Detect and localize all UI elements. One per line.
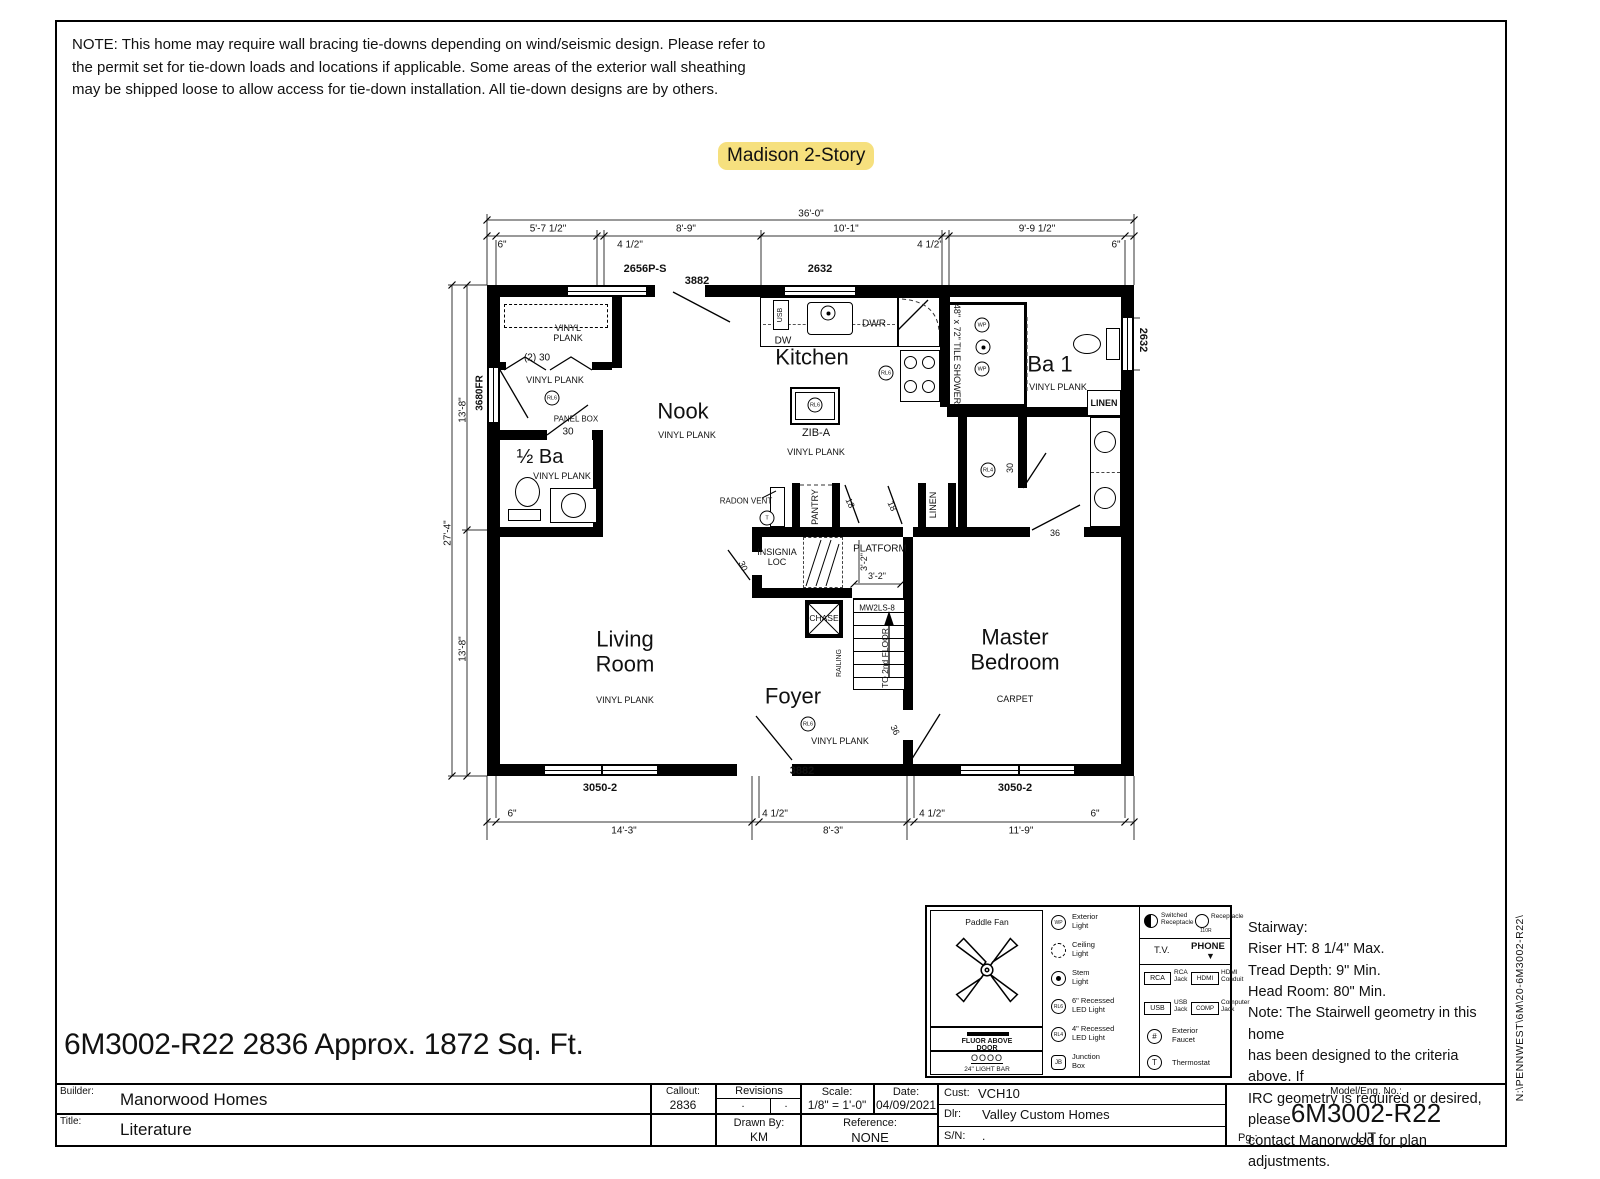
plan-label: 13'-8": [457, 636, 468, 661]
callout-value: 2836: [670, 1098, 697, 1112]
plan-label: 36'-0": [798, 208, 823, 219]
pg-value: LIT: [1356, 1129, 1376, 1145]
model-label: Model/Eng. No.:: [1330, 1086, 1402, 1097]
comp-jack-icon: COMP: [1191, 1002, 1219, 1015]
plan-labels-layer: 36'-0"5'-7 1/2"8'-9"10'-1"9'-9 1/2"6"4 1…: [440, 200, 1140, 845]
plan-label: ZIB-A: [802, 427, 830, 439]
plan-label: Foyer: [765, 685, 821, 710]
plan-label: 2656P-S: [624, 263, 667, 275]
receptacle-sub: 110R: [1200, 928, 1212, 934]
pg-label: Pg.:: [1238, 1132, 1258, 1144]
comp-jack-label: Computer Jack: [1221, 999, 1250, 1014]
rl6-light-icon: RL6: [1051, 999, 1066, 1014]
exterior-faucet-label: Exterior Faucet: [1172, 1027, 1198, 1044]
plan-label: 9'-9 1/2": [1019, 223, 1056, 234]
model-sqft-line: 6M3002-R22 2836 Approx. 1872 Sq. Ft.: [64, 1028, 584, 1062]
usb-jack-icon: USB: [1144, 1002, 1171, 1015]
wp-symbol-icon: WP: [975, 318, 990, 333]
plan-label: VINYL PLANK: [811, 736, 869, 746]
tb-vline: [800, 1083, 802, 1147]
builder-label: Builder:: [60, 1086, 94, 1097]
paddle-fan-label: Paddle Fan: [965, 917, 1008, 927]
plan-title: Madison 2-Story: [718, 142, 874, 170]
symbol-legend: Paddle Fan FLUOR ABOVE DOOR OOOO 24" LIG…: [925, 905, 1232, 1078]
junction-box-icon: JB: [1051, 1055, 1066, 1070]
tv-label: T.V.: [1154, 945, 1170, 956]
plan-label: 8'-9": [676, 223, 696, 234]
dlr-label: Dlr:: [944, 1108, 961, 1120]
tb-vline: [873, 1083, 875, 1113]
hdmi-label: HDMI Conduit: [1221, 969, 1243, 984]
rl6-symbol-icon: RL6: [545, 391, 560, 406]
reference-value: NONE: [851, 1130, 889, 1145]
plan-label: 18: [885, 499, 898, 512]
plan-label: 14'-3": [611, 825, 636, 836]
drawing-element: [826, 311, 830, 315]
fluor-bar-icon: [967, 1032, 1009, 1036]
plan-label: 27'-4": [442, 520, 453, 545]
drawing-sheet: NOTE: This home may require wall bracing…: [0, 0, 1600, 1179]
scale-value: 1/8" = 1'-0": [808, 1098, 867, 1112]
plan-label: 30: [736, 559, 749, 572]
plan-label: VINYL PLANK: [553, 323, 583, 343]
revision-dot-1: .: [741, 1098, 744, 1110]
thermostat-icon: T: [1147, 1055, 1162, 1070]
drawing-element: [957, 975, 984, 1002]
rl6-light-label: 6" Recessed LED Light: [1072, 997, 1114, 1014]
tb-vline: [1225, 1083, 1227, 1147]
plan-label: (2) 30: [524, 352, 550, 363]
date-value: 04/09/2021: [876, 1098, 936, 1112]
plan-label: 3882: [790, 765, 814, 777]
legend-vline: [1139, 907, 1140, 1076]
tb-vline: [650, 1083, 652, 1147]
plan-label: 6": [1090, 808, 1099, 819]
plan-label: Living Room: [596, 627, 655, 676]
plan-label: 6": [497, 239, 506, 250]
plan-label: 30: [1005, 463, 1015, 473]
plan-label: 3050-2: [998, 782, 1032, 794]
drawing-element: [957, 939, 986, 966]
tb-hline: [937, 1104, 1225, 1105]
dlr-value: Valley Custom Homes: [982, 1107, 1110, 1122]
plan-label: ½ Ba: [517, 446, 564, 468]
model-value: 6M3002-R22: [1291, 1098, 1441, 1129]
rl4-symbol-icon: RL4: [981, 463, 996, 478]
tb-hline: [55, 1113, 652, 1115]
stem-light-icon: [821, 306, 836, 321]
drawing-element: [991, 939, 1018, 966]
revision-dot-2: .: [784, 1098, 787, 1110]
reference-label: Reference:: [843, 1117, 897, 1129]
drawnby-label: Drawn By:: [734, 1117, 785, 1129]
rl4-light-icon: RL4: [1051, 1027, 1066, 1042]
rl6-symbol-icon: RL6: [808, 398, 823, 413]
rl6-symbol-icon: RL6: [801, 717, 816, 732]
plan-label: 36: [888, 723, 901, 736]
light-bar-icon: OOOO: [971, 1053, 1003, 1064]
tb-hline: [715, 1098, 802, 1099]
switched-receptacle-icon: [1144, 914, 1158, 928]
plan-label: 18: [843, 496, 856, 509]
plan-label: Kitchen: [775, 346, 848, 371]
stem-light-label: Stem Light: [1072, 969, 1090, 986]
plan-label: 3680FR: [474, 375, 485, 411]
plan-label: 4 1/2": [917, 239, 943, 250]
plan-label: 8'-3": [823, 825, 843, 836]
plan-label: 3882: [685, 275, 709, 287]
plan-label: LINEN: [928, 492, 938, 519]
tb-vline: [715, 1083, 717, 1147]
usb-jack-label: USB Jack: [1174, 999, 1187, 1014]
plan-label: DW: [775, 335, 792, 346]
builder-value: Manorwood Homes: [120, 1090, 267, 1110]
drawing-element: [1056, 976, 1061, 981]
rca-jack-icon: RCA: [1144, 972, 1171, 985]
title-label: Title:: [60, 1116, 81, 1127]
plan-label: Ba 1: [1027, 353, 1072, 378]
plan-label: DWR: [862, 318, 886, 329]
legend-hline1: [1139, 938, 1232, 939]
plan-label: 30: [562, 426, 573, 437]
plan-label: INSIGNIA LOC: [757, 547, 797, 567]
plan-label: 10'-1": [833, 223, 858, 234]
plan-label: 3'-2": [859, 553, 869, 571]
plan-label: VINYL PLANK: [533, 471, 591, 481]
receptacle-label: Receptacle: [1211, 913, 1244, 920]
plan-label: RADON VENT: [720, 498, 772, 507]
revisions-label: Revisions: [735, 1085, 783, 1097]
fluor-cell: FLUOR ABOVE DOOR: [930, 1027, 1043, 1051]
plan-label: 3050-2: [583, 782, 617, 794]
plan-label: CHASE: [809, 614, 838, 624]
drawing-element: [991, 975, 1018, 1002]
exterior-light-label: Exterior Light: [1072, 913, 1098, 930]
sn-value: .: [982, 1129, 985, 1143]
exterior-faucet-icon: #: [1147, 1029, 1162, 1044]
drawnby-value: KM: [750, 1130, 768, 1144]
cust-value: VCH10: [978, 1086, 1020, 1101]
t-symbol-icon: T: [760, 511, 775, 526]
plan-label: Master Bedroom: [970, 625, 1059, 674]
wp-symbol-icon: WP: [975, 362, 990, 377]
phone-arrow-icon: ▼: [1206, 951, 1215, 961]
plan-label: 4 1/2": [762, 808, 788, 819]
ceiling-light-icon: [1051, 943, 1066, 958]
tb-vline: [937, 1083, 939, 1147]
fluor-label: FLUOR ABOVE DOOR: [960, 1038, 1015, 1052]
plan-label: PANEL BOX: [554, 416, 598, 425]
ceiling-light-label: Ceiling Light: [1072, 941, 1095, 958]
drawing-element: [981, 345, 985, 349]
callout-label: Callout:: [666, 1086, 700, 1097]
plan-label: 6": [1111, 239, 1120, 250]
plan-label: Nook: [657, 400, 708, 425]
exterior-light-icon: WP: [1051, 915, 1066, 930]
tb-hline: [937, 1126, 1225, 1127]
stem-light-icon: [976, 340, 991, 355]
date-label: Date:: [893, 1086, 919, 1098]
plan-label: 2632: [808, 263, 832, 275]
tb-hline: [650, 1113, 939, 1115]
stem-light-icon: [1051, 971, 1066, 986]
plan-label: TO 2nd FLOOR: [881, 628, 891, 688]
tb-vline: [770, 1098, 771, 1113]
plan-label: 48" x 72" TILE SHOWER: [952, 304, 962, 404]
legend-hline2: [1139, 964, 1232, 965]
lightbar-cell: OOOO 24" LIGHT BAR: [930, 1051, 1043, 1075]
plan-label: 6": [507, 808, 516, 819]
thermostat-label: Thermostat: [1172, 1059, 1210, 1068]
plan-label: VINYL PLANK: [526, 375, 584, 385]
plan-label: USB: [777, 308, 785, 322]
plan-label: LINEN: [1091, 398, 1118, 408]
plan-label: VINYL PLANK: [787, 447, 845, 457]
drawing-element: [981, 964, 993, 976]
sn-label: S/N:: [944, 1130, 965, 1142]
tie-down-note: NOTE: This home may require wall bracing…: [72, 34, 765, 102]
cust-label: Cust:: [944, 1087, 970, 1099]
file-path-margin: N:\PENNWEST\6M\20-6M3002-R22\: [1514, 915, 1526, 1102]
plan-label: 2632: [1137, 328, 1149, 352]
plan-label: CARPET: [997, 694, 1034, 704]
drawing-element: [985, 968, 989, 972]
receptacle-icon: [1195, 914, 1209, 928]
plan-label: 13'-8": [457, 397, 468, 422]
plan-label: PANTRY: [810, 489, 820, 525]
title-value: Literature: [120, 1120, 192, 1140]
plan-label: RAILING: [836, 649, 844, 677]
plan-label: MW2LS-8: [859, 605, 895, 614]
hdmi-icon: HDMI: [1191, 972, 1219, 985]
plan-label: 4 1/2": [617, 239, 643, 250]
floor-plan: 36'-0"5'-7 1/2"8'-9"10'-1"9'-9 1/2"6"4 1…: [440, 200, 1140, 845]
switched-receptacle-label: Switched Receptacle: [1161, 912, 1194, 927]
paddle-fan-cell: Paddle Fan: [930, 910, 1043, 1027]
plan-label: 3'-2": [868, 571, 886, 581]
paddle-fan-icon: [952, 935, 1022, 1005]
rl6-symbol-icon: RL6: [879, 366, 894, 381]
rca-jack-label: RCA Jack: [1174, 969, 1188, 984]
junction-box-label: Junction Box: [1072, 1053, 1100, 1070]
rl4-light-label: 4" Recessed LED Light: [1072, 1025, 1114, 1042]
lightbar-label: 24" LIGHT BAR: [964, 1066, 1010, 1073]
scale-label: Scale:: [822, 1086, 853, 1098]
plan-label: 11'-9": [1009, 825, 1034, 836]
plan-label: 4 1/2": [919, 808, 945, 819]
plan-label: 5'-7 1/2": [530, 223, 567, 234]
plan-label: VINYL PLANK: [658, 430, 716, 440]
plan-label: 36: [1050, 528, 1060, 538]
plan-label: VINYL PLANK: [596, 695, 654, 705]
plan-label: VINYL PLANK: [1029, 382, 1087, 392]
